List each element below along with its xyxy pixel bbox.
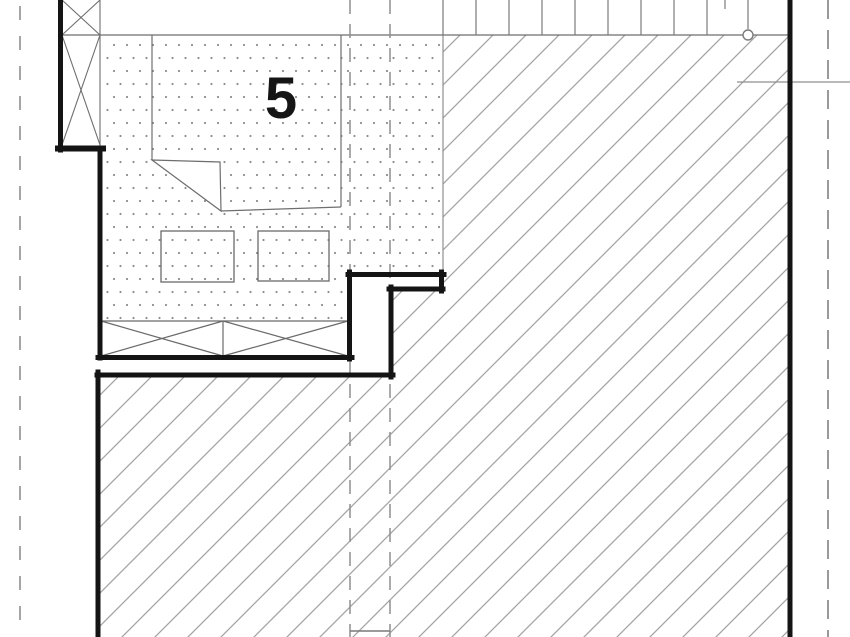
floor-plan-canvas: 5 [0, 0, 850, 637]
survey-point-circle [743, 30, 753, 40]
floor-plan-drawing: 5 [0, 0, 850, 637]
room-number-label: 5 [265, 66, 297, 131]
